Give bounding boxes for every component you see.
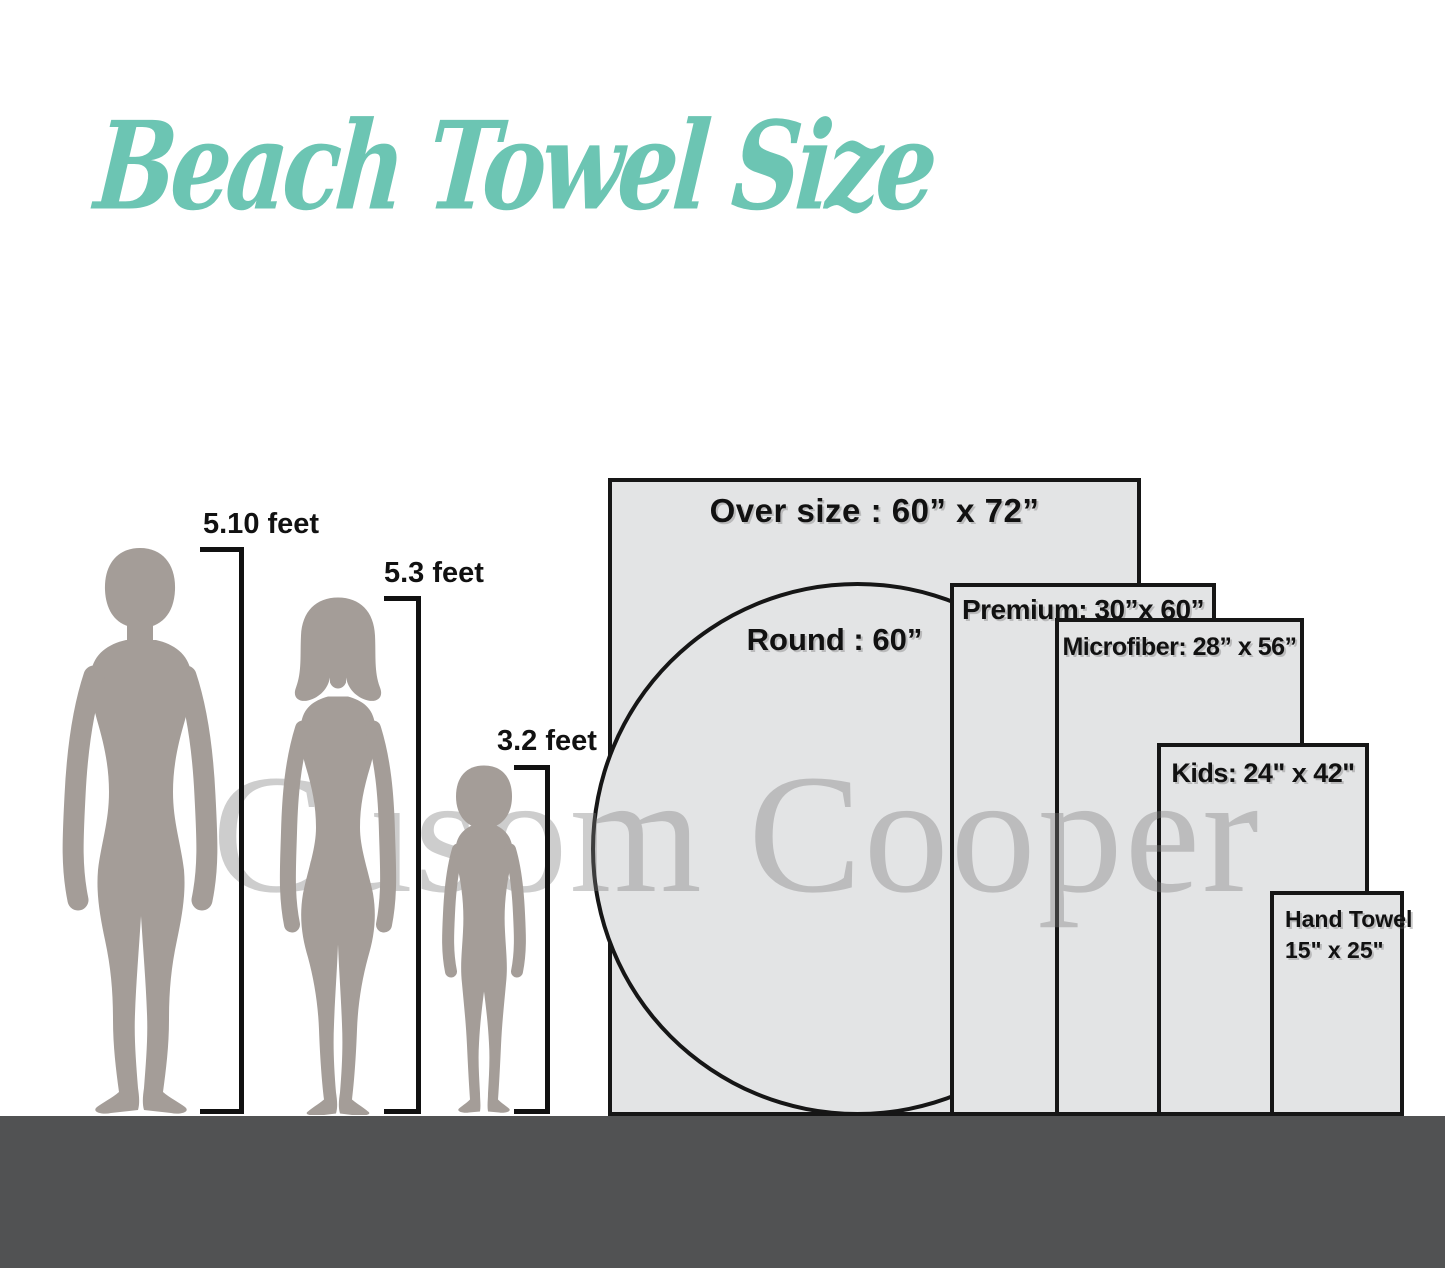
height-label-woman: 5.3 feet [384, 557, 484, 590]
woman-left-arm [288, 729, 303, 925]
towel-hand-towel-label-line2: 15" x 25" [1285, 935, 1412, 966]
towel-hand-towel: Hand Towel 15" x 25" [1270, 891, 1404, 1116]
height-bracket-child [514, 765, 550, 1114]
page-title: Beach Towel Size [90, 96, 938, 238]
woman-head-hair [295, 598, 381, 701]
height-bracket-man [200, 547, 244, 1114]
height-label-child: 3.2 feet [497, 725, 597, 758]
woman-body [300, 697, 375, 1116]
towel-oversize-label: Over size : 60” x 72” [612, 492, 1137, 530]
man-left-arm [73, 676, 94, 900]
child-left-arm [448, 850, 458, 972]
man-body [90, 640, 192, 1114]
towel-hand-towel-label: Hand Towel 15" x 25" [1285, 904, 1412, 966]
ground-bar [0, 1116, 1445, 1268]
towel-kids-label: Kids: 24" x 42" [1161, 758, 1365, 789]
towel-hand-towel-label-line1: Hand Towel [1285, 904, 1412, 935]
beach-towel-size-infographic: Beach Towel Size Over size : 60” x 72” R… [0, 0, 1445, 1268]
towel-microfiber-label: Microfiber: 28” x 56” [1059, 633, 1300, 662]
child-body [455, 824, 512, 1113]
height-bracket-woman [384, 596, 421, 1114]
height-label-man: 5.10 feet [203, 508, 319, 541]
